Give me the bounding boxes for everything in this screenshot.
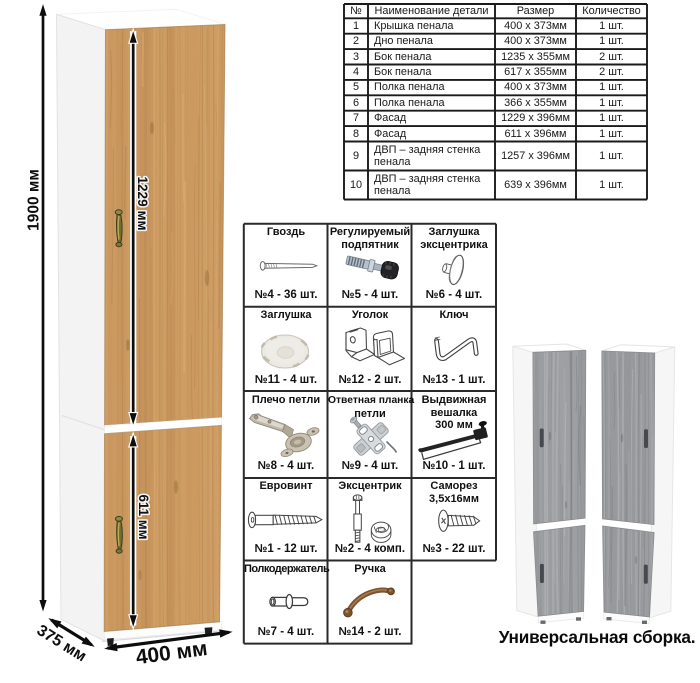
svg-text:1229 мм: 1229 мм — [135, 176, 150, 230]
svg-text:1900 мм: 1900 мм — [26, 169, 43, 231]
svg-text:611 мм: 611 мм — [136, 494, 151, 539]
